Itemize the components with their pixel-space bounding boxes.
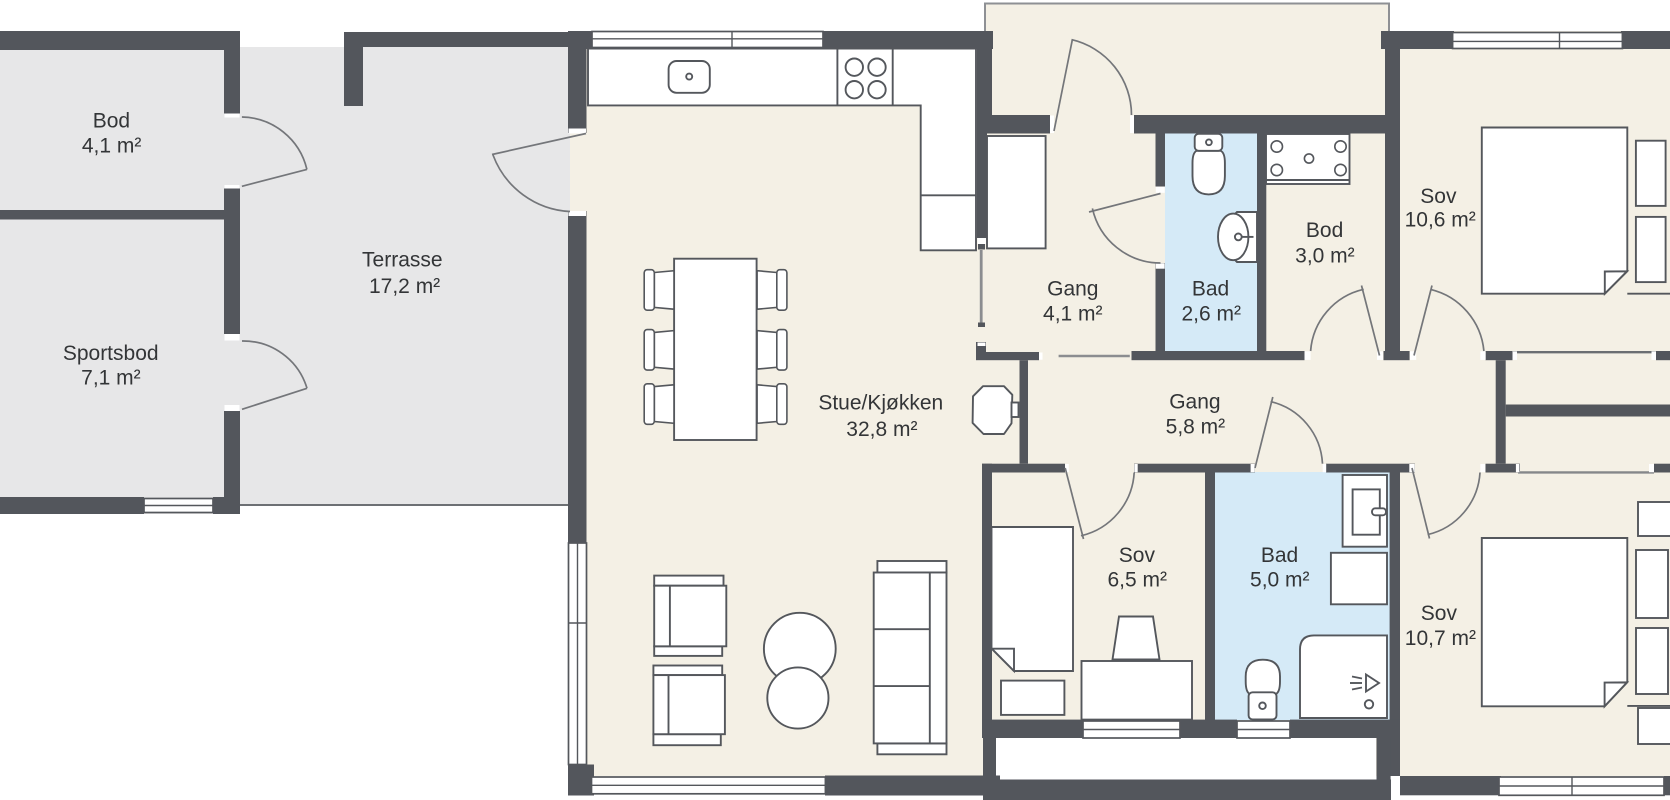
svg-text:5,0 m²: 5,0 m² — [1250, 568, 1310, 591]
svg-text:Gang: Gang — [1169, 391, 1220, 414]
svg-text:Terrasse: Terrasse — [362, 249, 443, 272]
svg-text:17,2 m²: 17,2 m² — [369, 275, 440, 298]
svg-text:Sov: Sov — [1420, 185, 1457, 208]
svg-text:Stue/Kjøkken: Stue/Kjøkken — [818, 392, 943, 415]
svg-text:Bad: Bad — [1192, 277, 1229, 300]
svg-text:2,6 m²: 2,6 m² — [1181, 302, 1241, 325]
svg-text:10,6 m²: 10,6 m² — [1405, 208, 1476, 231]
svg-text:4,1 m²: 4,1 m² — [1043, 302, 1103, 325]
svg-text:Gang: Gang — [1047, 277, 1098, 300]
svg-text:3,0 m²: 3,0 m² — [1295, 244, 1355, 267]
svg-text:7,1 m²: 7,1 m² — [81, 366, 141, 389]
svg-text:Sov: Sov — [1421, 602, 1458, 625]
svg-text:5,8 m²: 5,8 m² — [1166, 416, 1226, 439]
svg-text:6,5 m²: 6,5 m² — [1107, 568, 1167, 591]
svg-text:4,1 m²: 4,1 m² — [82, 135, 142, 158]
svg-text:32,8 m²: 32,8 m² — [846, 418, 917, 441]
svg-text:Sportsbod: Sportsbod — [63, 342, 159, 365]
svg-text:Sov: Sov — [1119, 544, 1156, 567]
svg-text:10,7 m²: 10,7 m² — [1405, 627, 1476, 650]
svg-text:Bod: Bod — [93, 109, 130, 132]
svg-text:Bod: Bod — [1306, 219, 1343, 242]
svg-text:Bad: Bad — [1261, 544, 1298, 567]
